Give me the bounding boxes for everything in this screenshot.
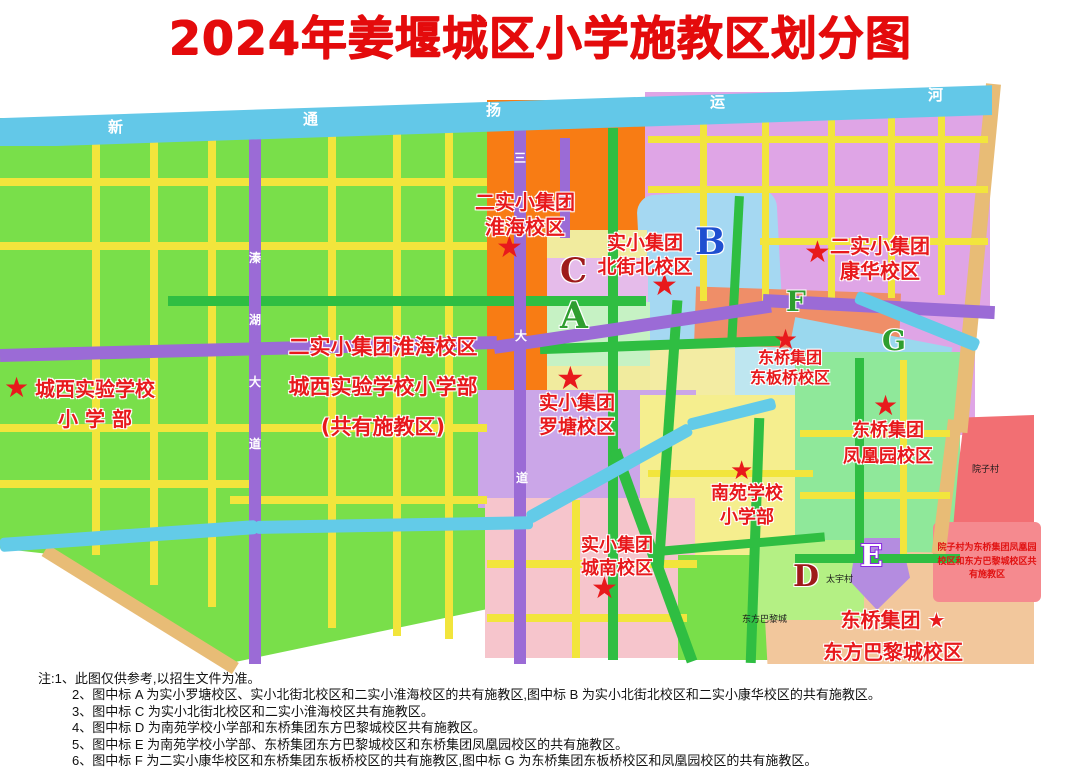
- note-line: 注:1、此图仅供参考,以招生文件为准。: [38, 671, 1068, 687]
- school-label-line: 二实小集团淮海校区: [289, 328, 478, 368]
- river-name-char: 河: [928, 88, 943, 103]
- letter-marker-c: C: [560, 254, 587, 288]
- school-label-line: 实小集团: [597, 232, 692, 256]
- river-name-char: 扬: [486, 103, 501, 118]
- note-line: 3、图中标 C 为实小北街北校区和二实小淮海校区共有施教区。: [38, 704, 1068, 720]
- road-name-char: 三: [514, 152, 526, 164]
- road-yellow: [762, 96, 769, 306]
- school-label-line: 东方巴黎城校区: [823, 636, 963, 668]
- school-label-chengxi: 城西实验学校 小 学 部: [35, 374, 155, 434]
- road-yellow: [572, 500, 580, 658]
- school-label-line: 城南校区: [581, 557, 653, 580]
- school-label-line: 康华校区: [830, 259, 930, 284]
- road-name-char: 大: [249, 376, 261, 388]
- river-name-char: 运: [710, 95, 725, 110]
- school-label-line: 北街北校区: [597, 256, 692, 280]
- road-yellow: [648, 186, 988, 193]
- road-purple-qinhu-avenue: [249, 126, 261, 664]
- road-name-char: 湖: [249, 314, 261, 326]
- note-line: 6、图中标 F 为二实小康华校区和东桥集团东板桥校区的共有施教区,图中标 G 为…: [38, 753, 1068, 769]
- letter-marker-g: G: [882, 327, 906, 355]
- school-label-line: 南苑学校: [711, 482, 783, 506]
- letter-marker-e: E: [860, 542, 883, 572]
- school-label-shared-west: 二实小集团淮海校区 城西实验学校小学部 (共有施教区): [289, 328, 478, 448]
- note-line: 4、图中标 D 为南苑学校小学部和东桥集团东方巴黎城校区共有施教区。: [38, 720, 1068, 736]
- school-label-line: 东桥集团 ★: [823, 604, 963, 636]
- school-label-huaihai-north: 二实小集团 淮海校区: [475, 190, 575, 240]
- school-label-line: 淮海校区: [475, 215, 575, 240]
- school-label-line: 城西实验学校: [35, 374, 155, 404]
- notes-section: 注:1、此图仅供参考,以招生文件为准。 2、图中标 A 为实小罗塘校区、实小北街…: [38, 671, 1068, 769]
- letter-marker-f: F: [786, 288, 806, 316]
- road-yellow: [0, 480, 250, 488]
- school-label-line: 罗塘校区: [539, 416, 615, 440]
- road-yellow: [938, 100, 945, 295]
- star-icon-nanyuan: ★: [730, 458, 753, 484]
- school-label-kanghua: 二实小集团 康华校区: [830, 234, 930, 284]
- road-yellow: [0, 242, 487, 250]
- school-label-line: (共有施教区): [289, 408, 478, 448]
- star-icon-kanghua: ★: [804, 238, 831, 268]
- school-label-line: 小学部: [711, 506, 783, 530]
- school-label-line: 城西实验学校小学部: [289, 368, 478, 408]
- school-label-beijiebei: 实小集团 北街北校区: [597, 232, 692, 280]
- village-label-yuanzicun: 院子村: [972, 462, 999, 475]
- road-yellow: [0, 178, 487, 186]
- note-line: 5、图中标 E 为南苑学校小学部、东桥集团东方巴黎城校区和东桥集团凤凰园校区的共…: [38, 737, 1068, 753]
- note-text: 1、此图仅供参考,以招生文件为准。: [55, 671, 261, 686]
- road-name-char: 道: [516, 472, 528, 484]
- school-label-line: 凤凰园校区: [843, 444, 933, 470]
- road-yellow: [150, 135, 158, 585]
- road-yellow: [648, 136, 988, 143]
- school-label-luotang: 实小集团 罗塘校区: [539, 392, 615, 440]
- school-label-line: 东板桥校区: [750, 368, 830, 388]
- road-name-char: 大: [515, 330, 527, 342]
- school-label-line: 东桥集团: [843, 418, 933, 444]
- school-label-line: 二实小集团: [475, 190, 575, 215]
- village-label-dongfangbalicheng: 东方巴黎城: [742, 612, 787, 625]
- star-icon-chengxi: ★: [4, 374, 29, 402]
- school-label-chengnan: 实小集团 城南校区: [581, 534, 653, 581]
- school-label-nanyuan: 南苑学校 小学部: [711, 482, 783, 531]
- school-label-line: 实小集团: [581, 534, 653, 557]
- letter-marker-b: B: [695, 224, 725, 260]
- school-label-line: 二实小集团: [830, 234, 930, 259]
- school-label-dongbanqiao: 东桥集团 东板桥校区: [750, 348, 830, 388]
- river-name-char: 新: [108, 120, 123, 135]
- road-yellow: [230, 496, 487, 504]
- road-name-char: 道: [249, 438, 261, 450]
- road-yellow: [800, 492, 950, 499]
- school-label-dongfangbalicheng: 东桥集团 ★ 东方巴黎城校区: [823, 604, 963, 668]
- letter-marker-d: D: [793, 562, 819, 592]
- note-prefix: 注:: [38, 671, 55, 686]
- star-icon-fenghuangyuan: ★: [873, 392, 898, 420]
- star-icon-luotang: ★: [556, 362, 585, 394]
- road-name-char: 溱: [249, 252, 261, 264]
- note-line: 2、图中标 A 为实小罗塘校区、实小北街北校区和二实小淮海校区的共有施教区,图中…: [38, 687, 1068, 703]
- school-label-fenghuangyuan: 东桥集团 凤凰园校区: [843, 418, 933, 470]
- road-yellow: [700, 96, 707, 301]
- yuanzi-note: 院子村为东桥集团凤凰园校区和东方巴黎城校区共有施教区: [936, 542, 1038, 583]
- district-map: 新 通 扬 运 河 溱 湖 大 道 三 大 道: [0, 0, 1080, 784]
- letter-marker-a: A: [560, 298, 588, 334]
- river-name-char: 通: [303, 112, 318, 127]
- school-label-line: 东桥集团: [750, 348, 830, 368]
- school-label-line: 小 学 部: [35, 404, 155, 434]
- village-label-taiyucun: 太宇村: [826, 572, 853, 585]
- school-label-line: 实小集团: [539, 392, 615, 416]
